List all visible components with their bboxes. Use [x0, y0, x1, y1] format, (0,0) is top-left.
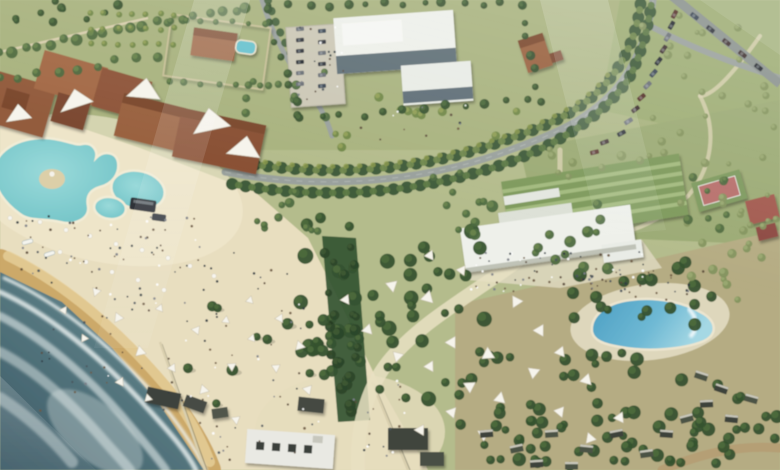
- watermark-overlay: [0, 0, 780, 470]
- aerial-rendering: [0, 0, 780, 470]
- scene-canvas: [0, 0, 780, 470]
- haze: [0, 0, 780, 470]
